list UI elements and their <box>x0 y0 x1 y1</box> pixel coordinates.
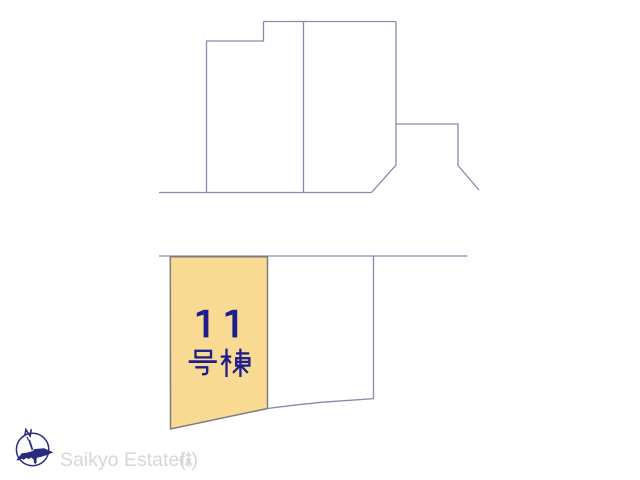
svg-text:): ) <box>192 449 199 471</box>
svg-text:Saikyo Estate(: Saikyo Estate( <box>60 449 186 471</box>
